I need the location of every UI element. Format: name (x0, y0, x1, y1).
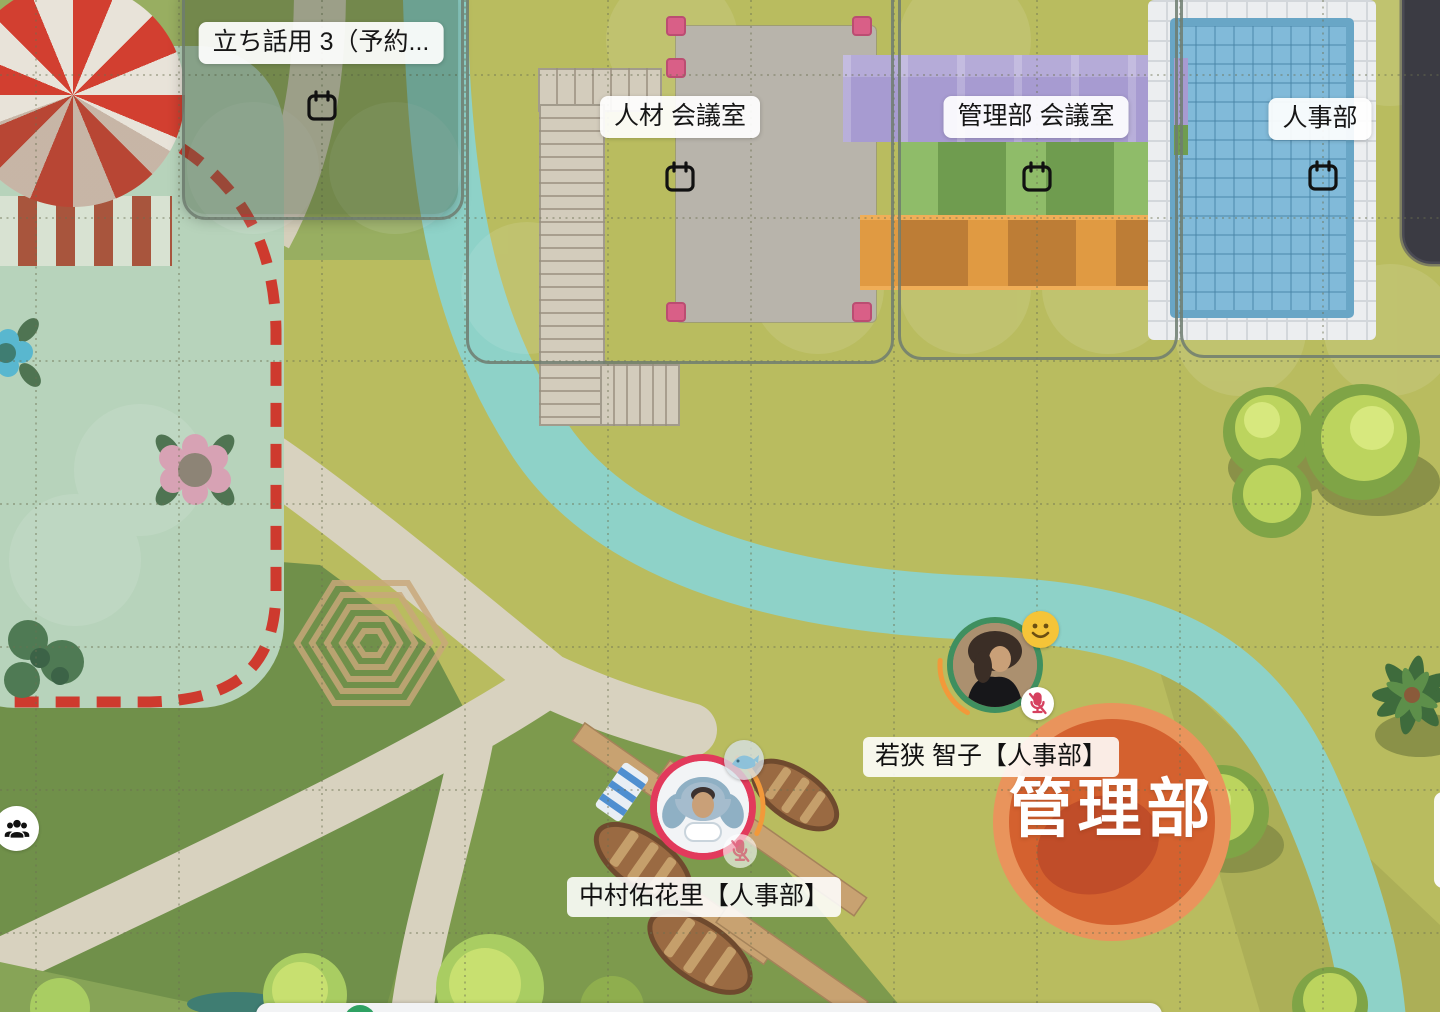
zone-label-standing-talk[interactable]: 立ち話用 3（予約... (199, 22, 444, 64)
tent-roof-shade (0, 0, 185, 207)
mic-off-icon (723, 834, 757, 868)
zone-label-text: 立ち話用 3（予約... (213, 28, 430, 56)
office-map-canvas[interactable]: 管理部 立ち話用 3（予約... 人材 会議室 管理部 会議室 人事部 (0, 0, 1440, 1012)
grass-bottomleft (0, 962, 235, 1012)
calendar-icon[interactable] (1019, 159, 1055, 195)
zone-label-text: 管理部 会議室 (958, 102, 1115, 130)
path-main (250, 448, 690, 730)
calendar-icon[interactable] (662, 159, 698, 195)
user-name-label: 中村佑花里【人事部】 (567, 877, 841, 917)
calendar-icon[interactable] (1305, 158, 1341, 194)
boardwalk-steps (600, 364, 680, 426)
zone-label-text: 人事部 (1282, 104, 1357, 132)
smiley-badge (1022, 611, 1059, 648)
grass-dark-wedge (0, 540, 520, 1012)
mic-off-icon (1021, 687, 1054, 720)
hexagon-gazebo (297, 583, 445, 703)
tree-cluster-right (1223, 384, 1440, 538)
bottom-toolbar[interactable] (256, 1003, 1162, 1012)
palm-tree (1372, 654, 1440, 757)
group-of-people-icon (3, 815, 31, 843)
people-counter-pill[interactable] (0, 806, 39, 851)
striped-lounge-chair (594, 761, 650, 822)
path-west (0, 682, 548, 978)
zone-label-kanribu[interactable]: 管理部 会議室 (944, 96, 1129, 138)
calendar-icon[interactable] (304, 88, 340, 124)
blue-flower (0, 314, 45, 391)
user-name-text: 中村佑花里【人事部】 (579, 882, 829, 910)
grass-boat-area (385, 700, 905, 1012)
trees-bottom (30, 934, 644, 1012)
whale-badge (724, 740, 764, 780)
zone-label-jinzai[interactable]: 人材 会議室 (600, 96, 760, 138)
white-object-edge (1434, 792, 1440, 888)
zone-label-text: 人材 会議室 (614, 102, 746, 130)
tent-awning (0, 196, 172, 266)
user-name-text: 若狭 智子【人事部】 (875, 742, 1107, 770)
zone-label-jinjibu[interactable]: 人事部 (1268, 98, 1371, 140)
dark-bushes (4, 620, 84, 698)
pink-flower (151, 430, 239, 510)
user-name-label: 若狭 智子【人事部】 (863, 737, 1119, 777)
path-south (412, 742, 472, 1012)
